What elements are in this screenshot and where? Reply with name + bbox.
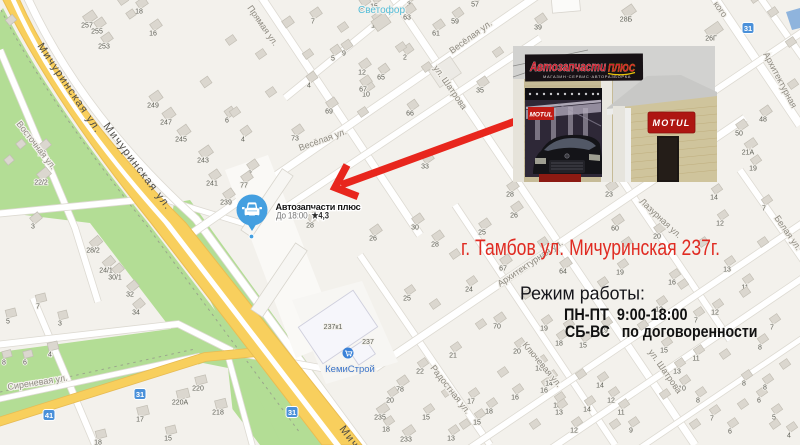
svg-text:30/1: 30/1 (108, 275, 122, 282)
svg-text:34: 34 (132, 310, 140, 317)
svg-text:31: 31 (744, 24, 752, 33)
svg-text:23: 23 (605, 192, 613, 199)
svg-text:18: 18 (485, 409, 493, 416)
svg-text:16: 16 (668, 280, 676, 287)
svg-text:15: 15 (164, 436, 172, 443)
svg-text:4: 4 (241, 137, 245, 144)
svg-text:6: 6 (23, 360, 27, 367)
svg-text:MOTUL: MOTUL (653, 118, 691, 128)
svg-text:3: 3 (58, 321, 62, 328)
svg-text:220А: 220А (172, 400, 189, 407)
svg-text:24: 24 (465, 287, 473, 294)
svg-text:7: 7 (36, 304, 40, 311)
svg-text:15: 15 (660, 348, 668, 355)
svg-text:8: 8 (742, 381, 746, 388)
svg-text:13: 13 (447, 436, 455, 443)
svg-text:МАГАЗИН·СЕРВИС·АВТОРАЗБОРКА: МАГАЗИН·СЕРВИС·АВТОРАЗБОРКА (543, 74, 631, 79)
svg-text:32: 32 (126, 292, 134, 299)
svg-text:241: 241 (206, 181, 218, 188)
svg-text:3: 3 (31, 224, 35, 231)
svg-text:73: 73 (291, 136, 299, 143)
svg-text:16: 16 (149, 31, 157, 38)
svg-text:60: 60 (611, 226, 619, 233)
svg-text:64: 64 (559, 269, 567, 276)
svg-text:59: 59 (451, 19, 459, 26)
svg-text:30: 30 (411, 225, 419, 232)
svg-text:57: 57 (471, 2, 479, 9)
svg-text:69: 69 (325, 109, 333, 116)
svg-text:220: 220 (192, 386, 204, 393)
svg-text:11: 11 (617, 410, 624, 417)
svg-text:★4,3: ★4,3 (311, 211, 329, 221)
svg-text:247: 247 (160, 120, 172, 127)
svg-text:31: 31 (136, 390, 144, 399)
svg-text:245: 245 (175, 137, 187, 144)
svg-text:18: 18 (382, 427, 390, 434)
svg-text:20: 20 (513, 349, 521, 356)
svg-text:218: 218 (212, 410, 224, 417)
svg-text:26: 26 (510, 213, 518, 220)
svg-text:До 18:00: До 18:00 (276, 211, 308, 221)
svg-text:16: 16 (540, 388, 548, 395)
svg-text:7: 7 (762, 206, 766, 213)
svg-text:4: 4 (48, 352, 52, 359)
svg-text:8: 8 (758, 345, 762, 352)
svg-text:249: 249 (147, 103, 159, 110)
svg-text:243: 243 (197, 158, 209, 165)
svg-text:КемиСтрой: КемиСтрой (325, 364, 375, 375)
svg-text:28: 28 (431, 242, 439, 249)
svg-text:6: 6 (728, 429, 732, 436)
svg-text:7: 7 (710, 416, 714, 423)
svg-text:12: 12 (607, 398, 615, 405)
svg-text:7: 7 (770, 325, 774, 332)
svg-text:14: 14 (596, 383, 604, 390)
svg-text:233: 233 (400, 437, 412, 444)
svg-text:26Г: 26Г (705, 36, 717, 43)
svg-text:21: 21 (449, 353, 457, 360)
svg-text:4: 4 (787, 433, 791, 440)
svg-text:67: 67 (359, 87, 367, 94)
svg-text:12: 12 (358, 70, 366, 77)
svg-text:28: 28 (506, 192, 514, 199)
svg-text:СБ-ВС по договоренности: СБ-ВС по договоренности (565, 322, 758, 341)
svg-text:19: 19 (616, 270, 624, 277)
svg-text:255: 255 (91, 29, 103, 36)
svg-text:12: 12 (711, 310, 719, 317)
svg-text:15: 15 (579, 343, 587, 350)
svg-text:237к1: 237к1 (324, 324, 343, 331)
svg-text:22/2: 22/2 (34, 180, 48, 187)
svg-text:21А: 21А (742, 150, 755, 157)
svg-text:50: 50 (735, 131, 743, 138)
svg-text:15: 15 (422, 415, 430, 422)
svg-text:15: 15 (473, 420, 481, 427)
svg-text:41: 41 (45, 411, 53, 420)
svg-text:16: 16 (511, 395, 519, 402)
svg-text:Режим работы:: Режим работы: (520, 283, 645, 304)
svg-text:28/2: 28/2 (86, 248, 100, 255)
svg-text:239: 239 (220, 200, 232, 207)
svg-text:48: 48 (759, 117, 767, 124)
svg-text:20: 20 (386, 398, 394, 405)
svg-text:33: 33 (421, 164, 429, 171)
svg-text:253: 253 (98, 44, 110, 51)
svg-text:MOTUL: MOTUL (529, 112, 552, 119)
svg-text:5: 5 (6, 319, 10, 326)
svg-text:237: 237 (362, 339, 374, 346)
svg-text:5: 5 (331, 56, 335, 63)
svg-text:65: 65 (377, 75, 385, 82)
svg-text:8: 8 (763, 385, 767, 392)
svg-text:28: 28 (306, 223, 314, 230)
svg-text:70: 70 (493, 324, 501, 331)
svg-text:35: 35 (476, 88, 484, 95)
svg-text:13: 13 (723, 267, 731, 274)
svg-text:ПЛЮС: ПЛЮС (608, 63, 636, 75)
svg-text:Автозапчасти: Автозапчасти (529, 60, 606, 74)
svg-text:19: 19 (540, 326, 548, 333)
svg-text:8: 8 (696, 398, 700, 405)
svg-text:61: 61 (432, 31, 440, 38)
svg-text:13: 13 (555, 410, 563, 417)
svg-text:12: 12 (716, 221, 724, 228)
svg-text:9: 9 (342, 51, 346, 58)
svg-text:26: 26 (369, 236, 377, 243)
svg-text:7: 7 (311, 19, 315, 26)
svg-text:6: 6 (757, 398, 761, 405)
svg-text:28Б: 28Б (620, 17, 633, 24)
svg-text:4: 4 (307, 83, 311, 90)
svg-text:67: 67 (499, 266, 507, 273)
svg-text:24/1: 24/1 (99, 268, 113, 275)
svg-text:25: 25 (403, 296, 411, 303)
svg-text:2: 2 (403, 55, 407, 62)
svg-text:17: 17 (136, 417, 144, 424)
svg-text:66: 66 (406, 111, 414, 118)
svg-text:14: 14 (710, 195, 718, 202)
svg-text:14: 14 (583, 407, 591, 414)
svg-text:39: 39 (534, 25, 542, 32)
svg-text:77: 77 (240, 183, 248, 190)
svg-text:22: 22 (416, 369, 424, 376)
svg-text:г. Тамбов ул. Мичуринская 237г: г. Тамбов ул. Мичуринская 237г. (461, 235, 720, 260)
svg-text:18: 18 (94, 440, 102, 445)
svg-text:12: 12 (570, 428, 578, 435)
svg-text:18: 18 (555, 341, 563, 348)
svg-text:8: 8 (2, 360, 6, 367)
svg-text:6: 6 (225, 118, 229, 125)
svg-text:Светофор: Светофор (358, 4, 405, 16)
svg-text:31: 31 (288, 408, 296, 417)
svg-text:11: 11 (692, 356, 699, 363)
svg-text:9: 9 (629, 428, 633, 435)
svg-text:19: 19 (749, 166, 757, 173)
